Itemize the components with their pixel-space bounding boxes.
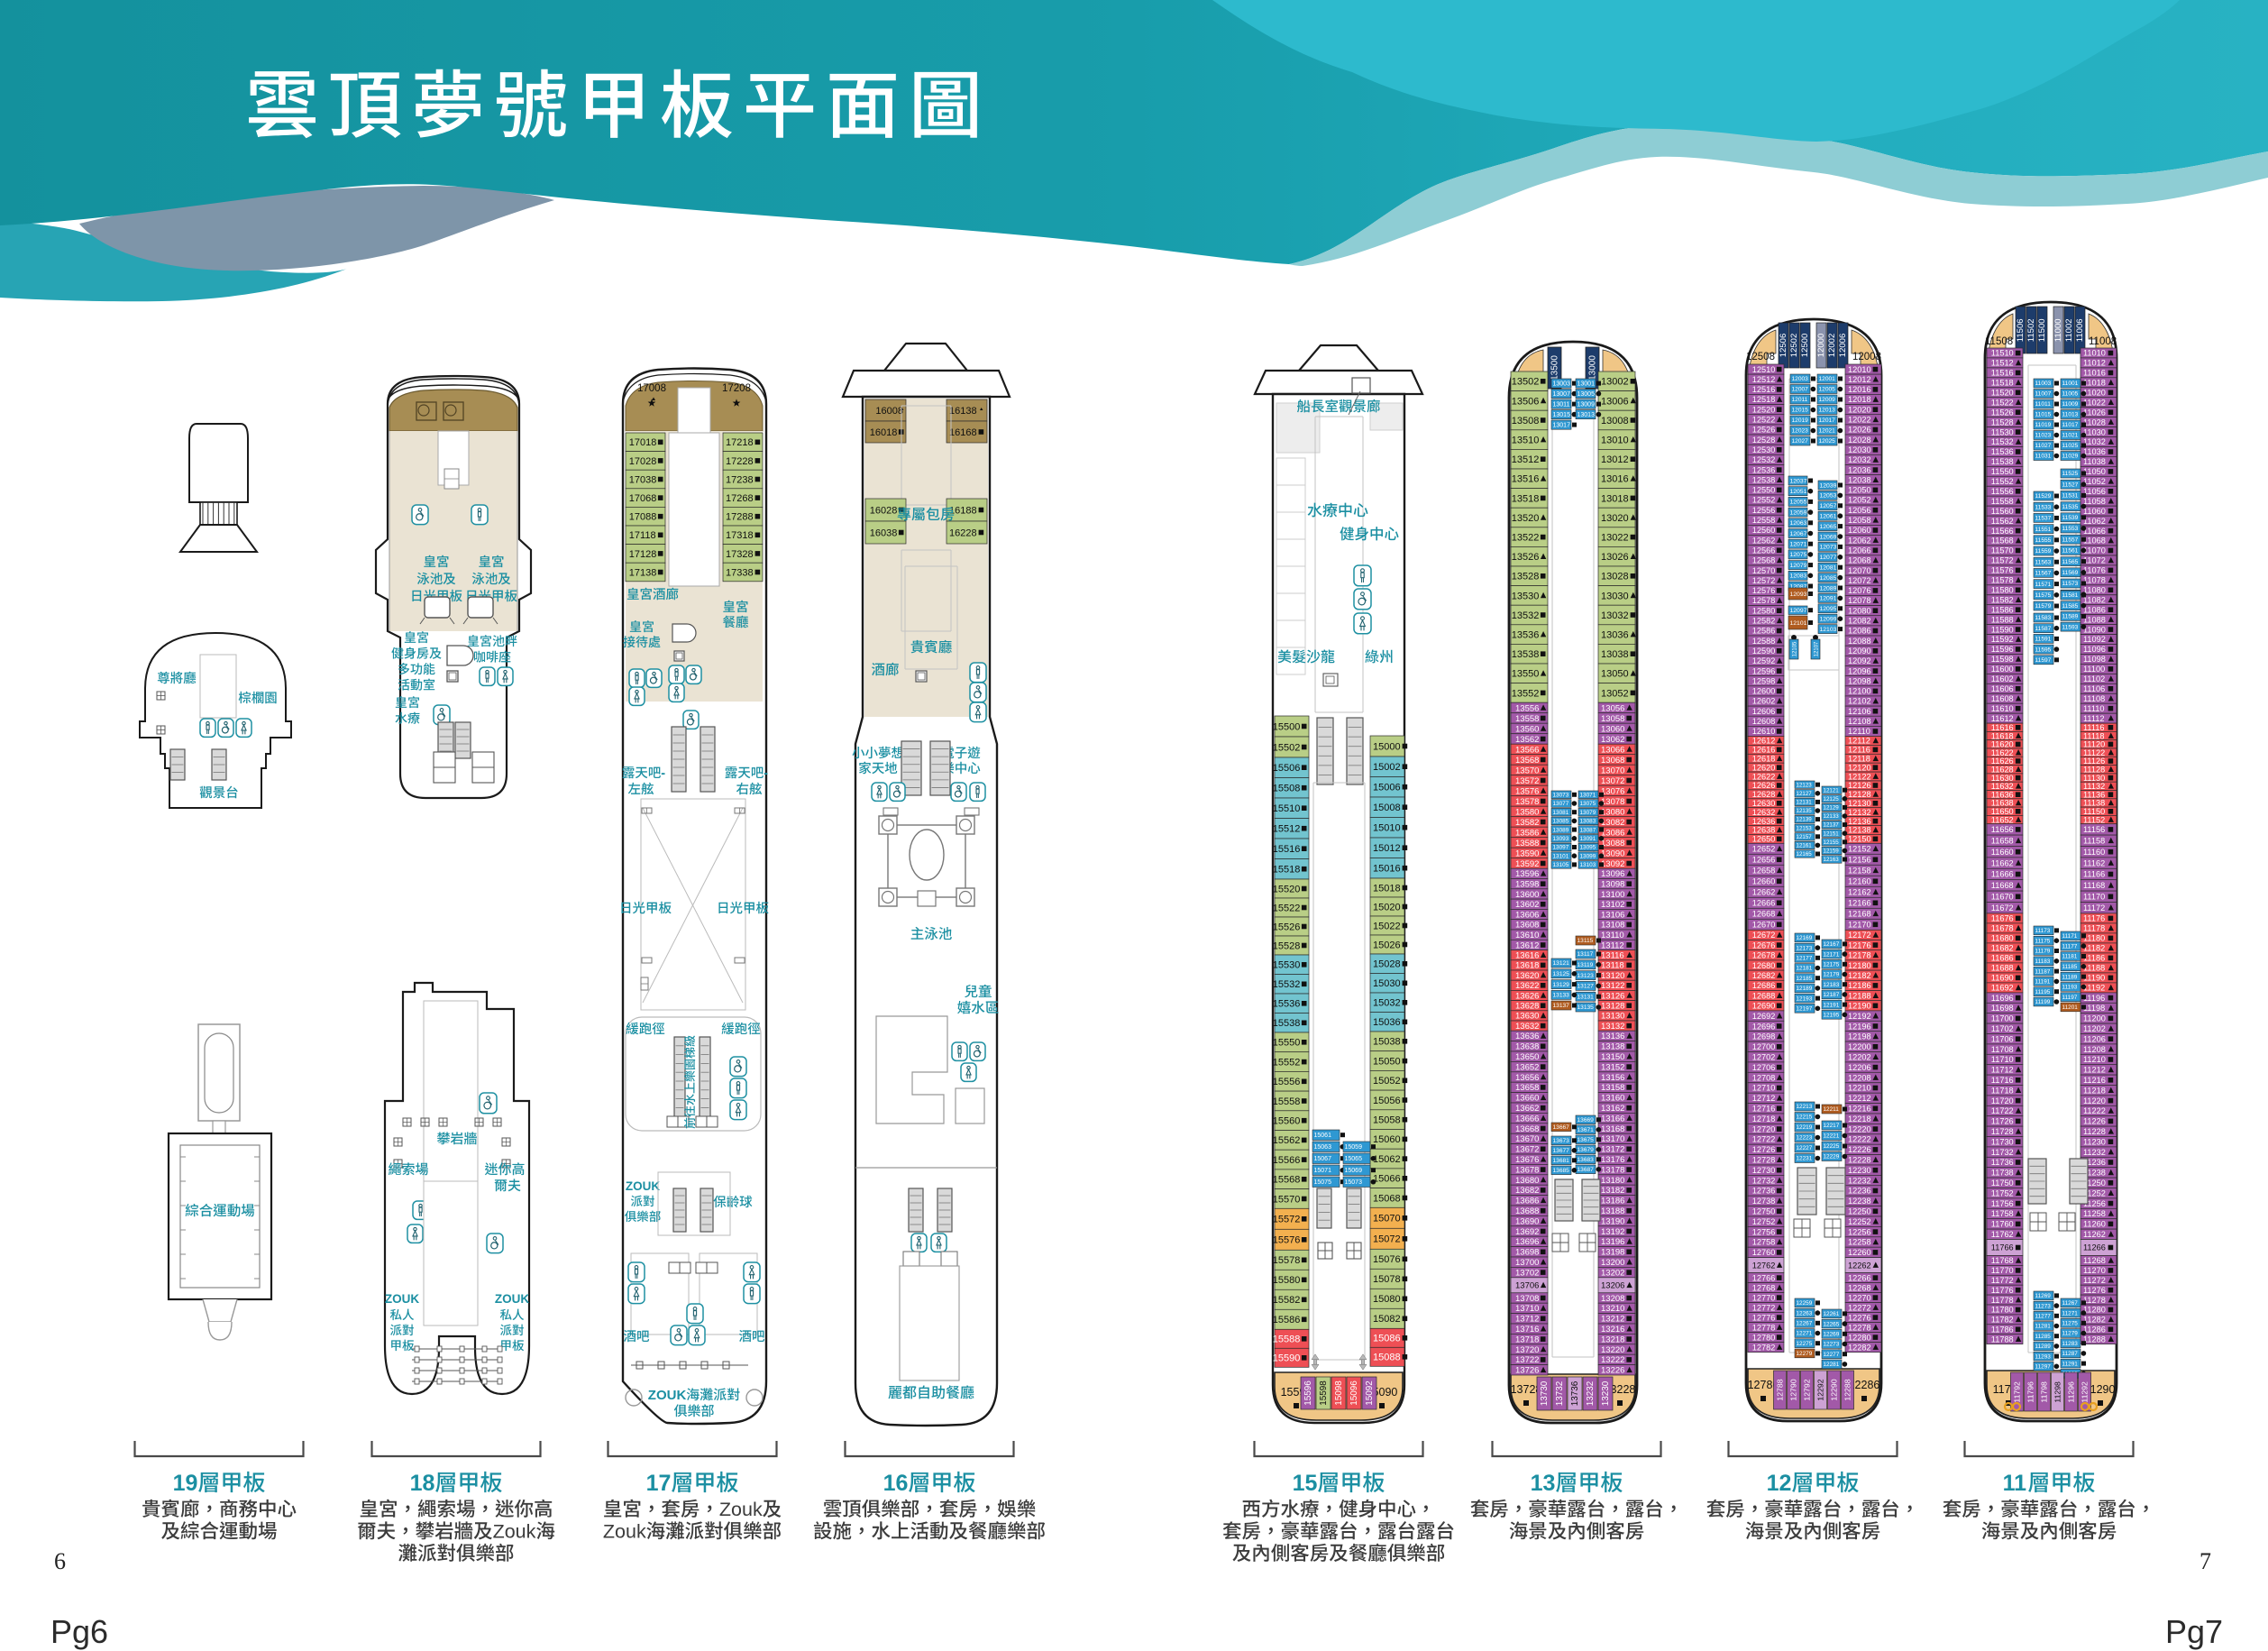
svg-text:15020: 15020: [1373, 902, 1401, 913]
svg-text:13216: 13216: [1601, 1325, 1624, 1335]
svg-text:-: -: [661, 766, 665, 781]
svg-text:13662: 13662: [1515, 1104, 1539, 1114]
svg-text:15098: 15098: [1334, 1380, 1344, 1406]
svg-text:12758: 12758: [1752, 1238, 1776, 1247]
svg-text:13119: 13119: [1578, 962, 1594, 968]
svg-text:13075: 13075: [1580, 801, 1596, 807]
svg-text:12070: 12070: [1848, 566, 1871, 575]
svg-text:17018: 17018: [629, 437, 657, 448]
svg-text:12263: 12263: [1797, 1310, 1813, 1316]
svg-text:11272: 11272: [2083, 1276, 2106, 1285]
svg-text:15520: 15520: [1273, 884, 1301, 894]
svg-text:13056: 13056: [1601, 703, 1624, 713]
svg-text:13200: 13200: [1601, 1258, 1624, 1268]
svg-text:15552: 15552: [1273, 1057, 1301, 1068]
svg-text:11710: 11710: [1991, 1055, 2014, 1064]
svg-text:13683: 13683: [1578, 1157, 1595, 1163]
svg-text:11012: 11012: [2083, 359, 2106, 368]
svg-text:12008: 12008: [1852, 352, 1881, 362]
svg-text:12736: 12736: [1752, 1187, 1776, 1196]
svg-text:15572: 15572: [1273, 1215, 1301, 1225]
svg-text:12586: 12586: [1752, 627, 1776, 636]
svg-text:11086: 11086: [2083, 605, 2106, 614]
svg-text:11293: 11293: [2035, 1353, 2052, 1360]
svg-text:12730: 12730: [1752, 1166, 1776, 1175]
svg-text:11072: 11072: [2083, 556, 2106, 565]
svg-text:11010: 11010: [2083, 349, 2106, 358]
svg-text:13066: 13066: [1601, 745, 1624, 755]
svg-text:11070: 11070: [2083, 546, 2106, 555]
svg-text:11098: 11098: [2083, 655, 2106, 664]
svg-text:15082: 15082: [1373, 1314, 1401, 1325]
svg-text:11563: 11563: [2035, 559, 2052, 565]
svg-text:15528: 15528: [1273, 940, 1301, 951]
svg-text:11506: 11506: [2016, 318, 2026, 342]
svg-text:12776: 12776: [1752, 1313, 1776, 1322]
svg-text:11080: 11080: [2083, 586, 2106, 595]
svg-text:11162: 11162: [2083, 858, 2105, 867]
svg-text:17328: 17328: [726, 549, 754, 560]
svg-text:12202: 12202: [1848, 1053, 1871, 1062]
svg-text:Zouk: Zouk: [719, 1499, 763, 1520]
svg-text:12059: 12059: [1790, 509, 1807, 516]
svg-text:12196: 12196: [1848, 1022, 1871, 1031]
svg-text:11192: 11192: [2083, 984, 2105, 993]
svg-text:12273: 12273: [1824, 1342, 1840, 1348]
svg-text:12696: 12696: [1752, 1022, 1776, 1031]
svg-text:12038: 12038: [1848, 475, 1871, 484]
svg-text:12081: 12081: [1820, 565, 1837, 572]
svg-text:13050: 13050: [1601, 669, 1629, 680]
svg-text:12720: 12720: [1752, 1124, 1776, 1133]
svg-text:15526: 15526: [1273, 922, 1301, 932]
svg-text:11788: 11788: [1991, 1335, 2014, 1344]
svg-text:13089: 13089: [1553, 827, 1569, 833]
svg-text:11533: 11533: [2035, 504, 2052, 510]
svg-text:13030: 13030: [1601, 591, 1629, 601]
svg-text:11023: 11023: [2035, 433, 2052, 439]
svg-text:12279: 12279: [1797, 1351, 1813, 1357]
svg-text:12229: 12229: [1824, 1154, 1840, 1160]
svg-text:17088: 17088: [629, 512, 657, 523]
svg-text:12792: 12792: [1803, 1379, 1812, 1400]
svg-text:15530: 15530: [1273, 960, 1301, 971]
svg-text:12510: 12510: [1752, 365, 1776, 374]
svg-text:13578: 13578: [1515, 797, 1539, 807]
svg-text:11108: 11108: [2083, 694, 2105, 703]
svg-text:13690: 13690: [1515, 1216, 1539, 1226]
svg-text:13106: 13106: [1601, 910, 1624, 920]
svg-text:12670: 12670: [1752, 921, 1776, 930]
svg-text:11610: 11610: [1991, 704, 2014, 713]
svg-text:11292: 11292: [2081, 1381, 2090, 1403]
svg-text:13222: 13222: [1601, 1355, 1624, 1365]
svg-text:12261: 12261: [1824, 1311, 1840, 1317]
svg-text:13082: 13082: [1601, 818, 1624, 828]
svg-text:11698: 11698: [1991, 1004, 2014, 1013]
svg-text:13186: 13186: [1601, 1197, 1624, 1206]
svg-text:12596: 12596: [1752, 666, 1776, 675]
svg-text:12530: 12530: [1752, 445, 1776, 454]
svg-text:11152: 11152: [2083, 815, 2105, 824]
svg-text:12096: 12096: [1848, 666, 1871, 675]
svg-text:13196: 13196: [1601, 1237, 1624, 1247]
svg-text:13150: 13150: [1601, 1052, 1624, 1062]
svg-text:12269: 12269: [1824, 1332, 1840, 1338]
svg-text:12572: 12572: [1752, 576, 1776, 585]
svg-text:13736: 13736: [1570, 1380, 1580, 1406]
svg-text:12118: 12118: [1848, 755, 1870, 764]
svg-text:11289: 11289: [2035, 1344, 2052, 1350]
svg-text:11: 11: [2003, 1471, 2027, 1496]
svg-text:11028: 11028: [2083, 417, 2106, 427]
svg-text:11160: 11160: [2083, 848, 2105, 857]
svg-text:11660: 11660: [1991, 848, 2014, 857]
svg-text:15062: 15062: [1373, 1154, 1401, 1165]
svg-text:12022: 12022: [1848, 416, 1871, 425]
svg-text:11197: 11197: [2062, 995, 2078, 1001]
svg-text:12188: 12188: [1848, 991, 1871, 1000]
svg-text:11585: 11585: [2062, 603, 2079, 610]
svg-text:13135: 13135: [1578, 1004, 1595, 1011]
svg-text:12292: 12292: [1816, 1379, 1825, 1400]
svg-text:12026: 12026: [1848, 426, 1871, 435]
svg-text:12618: 12618: [1752, 755, 1776, 764]
svg-text:13090: 13090: [1601, 848, 1624, 858]
svg-text:13606: 13606: [1515, 910, 1539, 920]
svg-text:12265: 12265: [1824, 1321, 1840, 1327]
svg-text:12190: 12190: [1848, 1002, 1871, 1011]
svg-text:13178: 13178: [1601, 1165, 1624, 1175]
svg-text:15059: 15059: [1345, 1144, 1363, 1151]
svg-text:11770: 11770: [1991, 1266, 2014, 1275]
svg-text:11013: 11013: [2062, 412, 2079, 418]
svg-text:12262: 12262: [1848, 1261, 1871, 1270]
svg-text:12500: 12500: [1800, 334, 1810, 357]
svg-text:11286: 11286: [2083, 1325, 2106, 1335]
svg-text:12518: 12518: [1752, 395, 1776, 404]
svg-text:12181: 12181: [1797, 966, 1813, 972]
svg-text:11173: 11173: [2035, 928, 2051, 934]
svg-text:11516: 11516: [1991, 369, 2014, 378]
svg-text:12002: 12002: [1827, 334, 1837, 357]
svg-text:11672: 11672: [1991, 903, 2014, 913]
svg-text:17038: 17038: [629, 474, 657, 485]
svg-text:Zouk: Zouk: [603, 1521, 646, 1543]
svg-text:12260: 12260: [1848, 1248, 1871, 1257]
svg-text:11652: 11652: [1991, 815, 2014, 824]
svg-text:11062: 11062: [2083, 517, 2106, 526]
svg-text:11595: 11595: [2035, 647, 2052, 653]
svg-text:15596: 15596: [1303, 1380, 1313, 1406]
svg-text:15022: 15022: [1373, 921, 1401, 931]
svg-text:11678: 11678: [1991, 924, 2014, 933]
svg-text:12636: 12636: [1752, 817, 1776, 826]
svg-text:13010: 13010: [1601, 436, 1629, 446]
svg-text:13210: 13210: [1601, 1304, 1624, 1314]
svg-text:12716: 12716: [1752, 1105, 1776, 1114]
svg-text:11170: 11170: [2083, 893, 2105, 902]
svg-text:13133: 13133: [1553, 993, 1570, 999]
svg-text:11600: 11600: [1991, 665, 2014, 674]
svg-text:12125: 12125: [1824, 796, 1840, 803]
svg-text:12152: 12152: [1848, 845, 1871, 854]
svg-text:15012: 15012: [1373, 843, 1401, 854]
svg-text:13038: 13038: [1601, 649, 1629, 660]
svg-text:12186: 12186: [1848, 981, 1871, 990]
svg-text:13080: 13080: [1601, 807, 1624, 817]
svg-text:13093: 13093: [1553, 836, 1569, 842]
svg-text:11269: 11269: [2035, 1293, 2052, 1299]
svg-text:11778: 11778: [1991, 1296, 2014, 1305]
svg-text:13608: 13608: [1515, 921, 1539, 931]
svg-text:15512: 15512: [1273, 824, 1301, 835]
svg-text:11277: 11277: [2035, 1314, 2052, 1320]
svg-text:12668: 12668: [1752, 910, 1776, 919]
svg-text:11526: 11526: [1991, 408, 2014, 417]
svg-text:13100: 13100: [1601, 890, 1624, 900]
svg-text:13220: 13220: [1601, 1345, 1624, 1355]
svg-text:13129: 13129: [1553, 982, 1570, 988]
svg-text:12628: 12628: [1752, 790, 1776, 799]
svg-text:11090: 11090: [2083, 625, 2106, 634]
svg-text:Pg7: Pg7: [2165, 1613, 2223, 1650]
svg-text:12610: 12610: [1752, 727, 1776, 736]
svg-text:11583: 11583: [2035, 615, 2052, 621]
svg-text:12223: 12223: [1797, 1135, 1813, 1142]
svg-text:13160: 13160: [1601, 1094, 1624, 1104]
svg-text:15030: 15030: [1373, 978, 1401, 989]
svg-text:12227: 12227: [1797, 1145, 1813, 1151]
svg-text:11782: 11782: [1991, 1316, 2014, 1325]
svg-text:13710: 13710: [1515, 1304, 1539, 1314]
svg-text:12060: 12060: [1848, 526, 1871, 535]
svg-text:13667: 13667: [1553, 1124, 1570, 1131]
svg-text:12083: 12083: [1790, 573, 1807, 580]
svg-text:11092: 11092: [2083, 635, 2106, 644]
svg-text:11576: 11576: [1991, 566, 2014, 575]
svg-text:13060: 13060: [1601, 724, 1624, 734]
svg-text:11690: 11690: [1991, 974, 2014, 983]
svg-text:11573: 11573: [2062, 581, 2079, 587]
svg-text:12271: 12271: [1797, 1331, 1813, 1337]
svg-text:15516: 15516: [1273, 844, 1301, 855]
svg-text:12552: 12552: [1752, 496, 1776, 505]
svg-text:12666: 12666: [1752, 899, 1776, 908]
svg-text:11555: 11555: [2035, 537, 2052, 544]
svg-text:15073: 15073: [1345, 1179, 1363, 1186]
svg-text:12221: 12221: [1824, 1133, 1840, 1140]
svg-text:12780: 12780: [1752, 1333, 1776, 1342]
svg-text:12079: 12079: [1790, 563, 1807, 569]
svg-text:12672: 12672: [1752, 931, 1776, 940]
svg-text:15088: 15088: [1373, 1353, 1401, 1363]
svg-text:12187: 12187: [1824, 992, 1840, 998]
svg-text:12222: 12222: [1848, 1135, 1871, 1144]
svg-text:11178: 11178: [2083, 924, 2105, 933]
svg-text:11279: 11279: [2062, 1331, 2079, 1337]
svg-text:11792: 11792: [2013, 1381, 2022, 1403]
svg-text:12626: 12626: [1752, 781, 1776, 790]
svg-text:12020: 12020: [1848, 405, 1871, 414]
svg-text:13668: 13668: [1515, 1124, 1539, 1134]
svg-text:15056: 15056: [1373, 1096, 1401, 1106]
svg-text:12102: 12102: [1848, 697, 1871, 706]
svg-text:11068: 11068: [2083, 537, 2106, 546]
svg-text:12051: 12051: [1790, 489, 1807, 495]
svg-text:12790: 12790: [1789, 1379, 1798, 1400]
svg-text:12268: 12268: [1848, 1283, 1871, 1292]
svg-text:15558: 15558: [1273, 1096, 1301, 1107]
svg-text:15506: 15506: [1273, 763, 1301, 774]
svg-text:13669: 13669: [1578, 1117, 1595, 1124]
svg-text:15000: 15000: [1373, 741, 1401, 752]
svg-text:13522: 13522: [1512, 533, 1540, 544]
svg-text:13101: 13101: [1553, 853, 1569, 859]
svg-text:11589: 11589: [2062, 614, 2079, 620]
svg-text:11756: 11756: [1991, 1199, 2014, 1208]
svg-text:13032: 13032: [1601, 610, 1629, 621]
svg-text:13081: 13081: [1553, 810, 1569, 816]
svg-text:11692: 11692: [1991, 984, 2014, 993]
svg-text:12180: 12180: [1848, 961, 1871, 970]
svg-text:12053: 12053: [1820, 493, 1837, 500]
svg-text:12506: 12506: [1779, 334, 1788, 357]
svg-text:12193: 12193: [1797, 995, 1813, 1002]
svg-text:13086: 13086: [1601, 828, 1624, 838]
svg-text:11168: 11168: [2083, 881, 2105, 890]
svg-text:12588: 12588: [1752, 637, 1776, 646]
svg-text:12602: 12602: [1752, 697, 1776, 706]
svg-text:13132: 13132: [1601, 1022, 1624, 1032]
svg-text:12075: 12075: [1790, 552, 1807, 558]
svg-text:15038: 15038: [1373, 1037, 1401, 1048]
svg-text:12512: 12512: [1752, 375, 1776, 384]
svg-text:13688: 13688: [1515, 1206, 1539, 1216]
svg-text:11001: 11001: [2062, 381, 2079, 387]
svg-text:13176: 13176: [1601, 1155, 1624, 1165]
svg-text:13137: 13137: [1553, 1003, 1570, 1009]
svg-text:12272: 12272: [1848, 1303, 1871, 1312]
svg-text:12275: 12275: [1797, 1341, 1813, 1347]
svg-text:11181: 11181: [2062, 954, 2078, 960]
svg-text:11508: 11508: [1985, 336, 2013, 347]
svg-text:11730: 11730: [1991, 1137, 2014, 1146]
svg-text:12211: 12211: [1824, 1106, 1840, 1113]
svg-text:11026: 11026: [2083, 408, 2106, 417]
svg-text:13566: 13566: [1515, 745, 1539, 755]
svg-text:13028: 13028: [1601, 572, 1629, 582]
svg-text:12562: 12562: [1752, 536, 1776, 545]
svg-text:12013: 12013: [1819, 408, 1836, 414]
svg-text:12067: 12067: [1790, 531, 1807, 537]
svg-text:11732: 11732: [1991, 1148, 2014, 1157]
svg-text:11582: 11582: [1991, 595, 2014, 604]
svg-text:11258: 11258: [2083, 1209, 2106, 1218]
svg-text:11271: 11271: [2062, 1310, 2079, 1316]
svg-text:13538: 13538: [1512, 649, 1540, 660]
svg-text:12155: 12155: [1824, 839, 1840, 846]
svg-text:12189: 12189: [1797, 986, 1813, 992]
svg-text:13610: 13610: [1515, 931, 1539, 940]
svg-text:12686: 12686: [1752, 981, 1776, 990]
svg-text:13552: 13552: [1512, 688, 1540, 699]
svg-text:13170: 13170: [1601, 1134, 1624, 1144]
svg-text:13673: 13673: [1553, 1138, 1570, 1144]
svg-text:12116: 12116: [1848, 746, 1870, 755]
svg-text:11198: 11198: [2083, 1004, 2105, 1013]
svg-text:12016: 12016: [1848, 385, 1871, 394]
svg-text:12225: 12225: [1824, 1143, 1840, 1150]
svg-text:11076: 11076: [2083, 566, 2106, 575]
svg-text:11762: 11762: [1991, 1230, 2014, 1239]
svg-text:15066: 15066: [1373, 1174, 1401, 1185]
svg-text:12770: 12770: [1752, 1293, 1776, 1302]
svg-text:13120: 13120: [1601, 971, 1624, 981]
svg-text:11003: 11003: [2035, 381, 2052, 387]
svg-text:12750: 12750: [1752, 1207, 1776, 1216]
svg-text:13095: 13095: [1580, 845, 1596, 851]
svg-text:13720: 13720: [1515, 1345, 1539, 1355]
svg-text:12198: 12198: [1848, 1032, 1871, 1041]
svg-text:13218: 13218: [1601, 1335, 1624, 1344]
svg-text:11592: 11592: [1991, 635, 2014, 644]
svg-text:13136: 13136: [1601, 1032, 1624, 1041]
svg-text:11050: 11050: [2083, 467, 2106, 476]
svg-text:12516: 12516: [1752, 385, 1776, 394]
svg-text:11722: 11722: [1991, 1106, 2014, 1115]
svg-text:13162: 13162: [1601, 1104, 1624, 1114]
svg-text:15582: 15582: [1273, 1295, 1301, 1306]
svg-text:12163: 12163: [1824, 857, 1840, 863]
svg-text:12252: 12252: [1848, 1217, 1871, 1226]
svg-text:13005: 13005: [1578, 391, 1596, 398]
svg-text:12558: 12558: [1752, 516, 1776, 525]
svg-text:15075: 15075: [1314, 1179, 1332, 1186]
svg-text:12570: 12570: [1752, 566, 1776, 575]
svg-text:11670: 11670: [1991, 893, 2014, 902]
svg-text:13512: 13512: [1512, 454, 1540, 465]
svg-text:15570: 15570: [1273, 1194, 1301, 1205]
svg-text:15590: 15590: [1273, 1353, 1301, 1364]
svg-text:11682: 11682: [1991, 944, 2014, 953]
svg-text:15032: 15032: [1373, 998, 1401, 1009]
svg-text:12630: 12630: [1752, 799, 1776, 808]
svg-text:12290: 12290: [1830, 1379, 1839, 1400]
svg-text:12055: 12055: [1790, 500, 1807, 506]
svg-text:12267: 12267: [1797, 1321, 1813, 1327]
svg-text:12213: 12213: [1797, 1104, 1813, 1110]
svg-text:13576: 13576: [1515, 786, 1539, 796]
svg-text:11166: 11166: [2083, 870, 2105, 879]
svg-text:19: 19: [173, 1471, 198, 1496]
svg-text:11297: 11297: [2035, 1364, 2052, 1371]
svg-text:11020: 11020: [2083, 389, 2106, 398]
svg-text:12021: 12021: [1819, 428, 1836, 435]
svg-text:13022: 13022: [1601, 533, 1629, 544]
svg-text:12077: 12077: [1820, 555, 1837, 561]
svg-text:12220: 12220: [1848, 1124, 1871, 1133]
svg-text:11776: 11776: [1991, 1286, 2014, 1295]
svg-text:12177: 12177: [1797, 956, 1813, 962]
svg-text:11529: 11529: [2035, 493, 2052, 500]
svg-text:11525: 11525: [2062, 471, 2079, 477]
svg-text:13131: 13131: [1578, 994, 1595, 1000]
svg-text:12160: 12160: [1848, 877, 1871, 886]
svg-text:13091: 13091: [1580, 836, 1596, 842]
svg-text:15532: 15532: [1273, 979, 1301, 990]
svg-text:13618: 13618: [1515, 961, 1539, 971]
